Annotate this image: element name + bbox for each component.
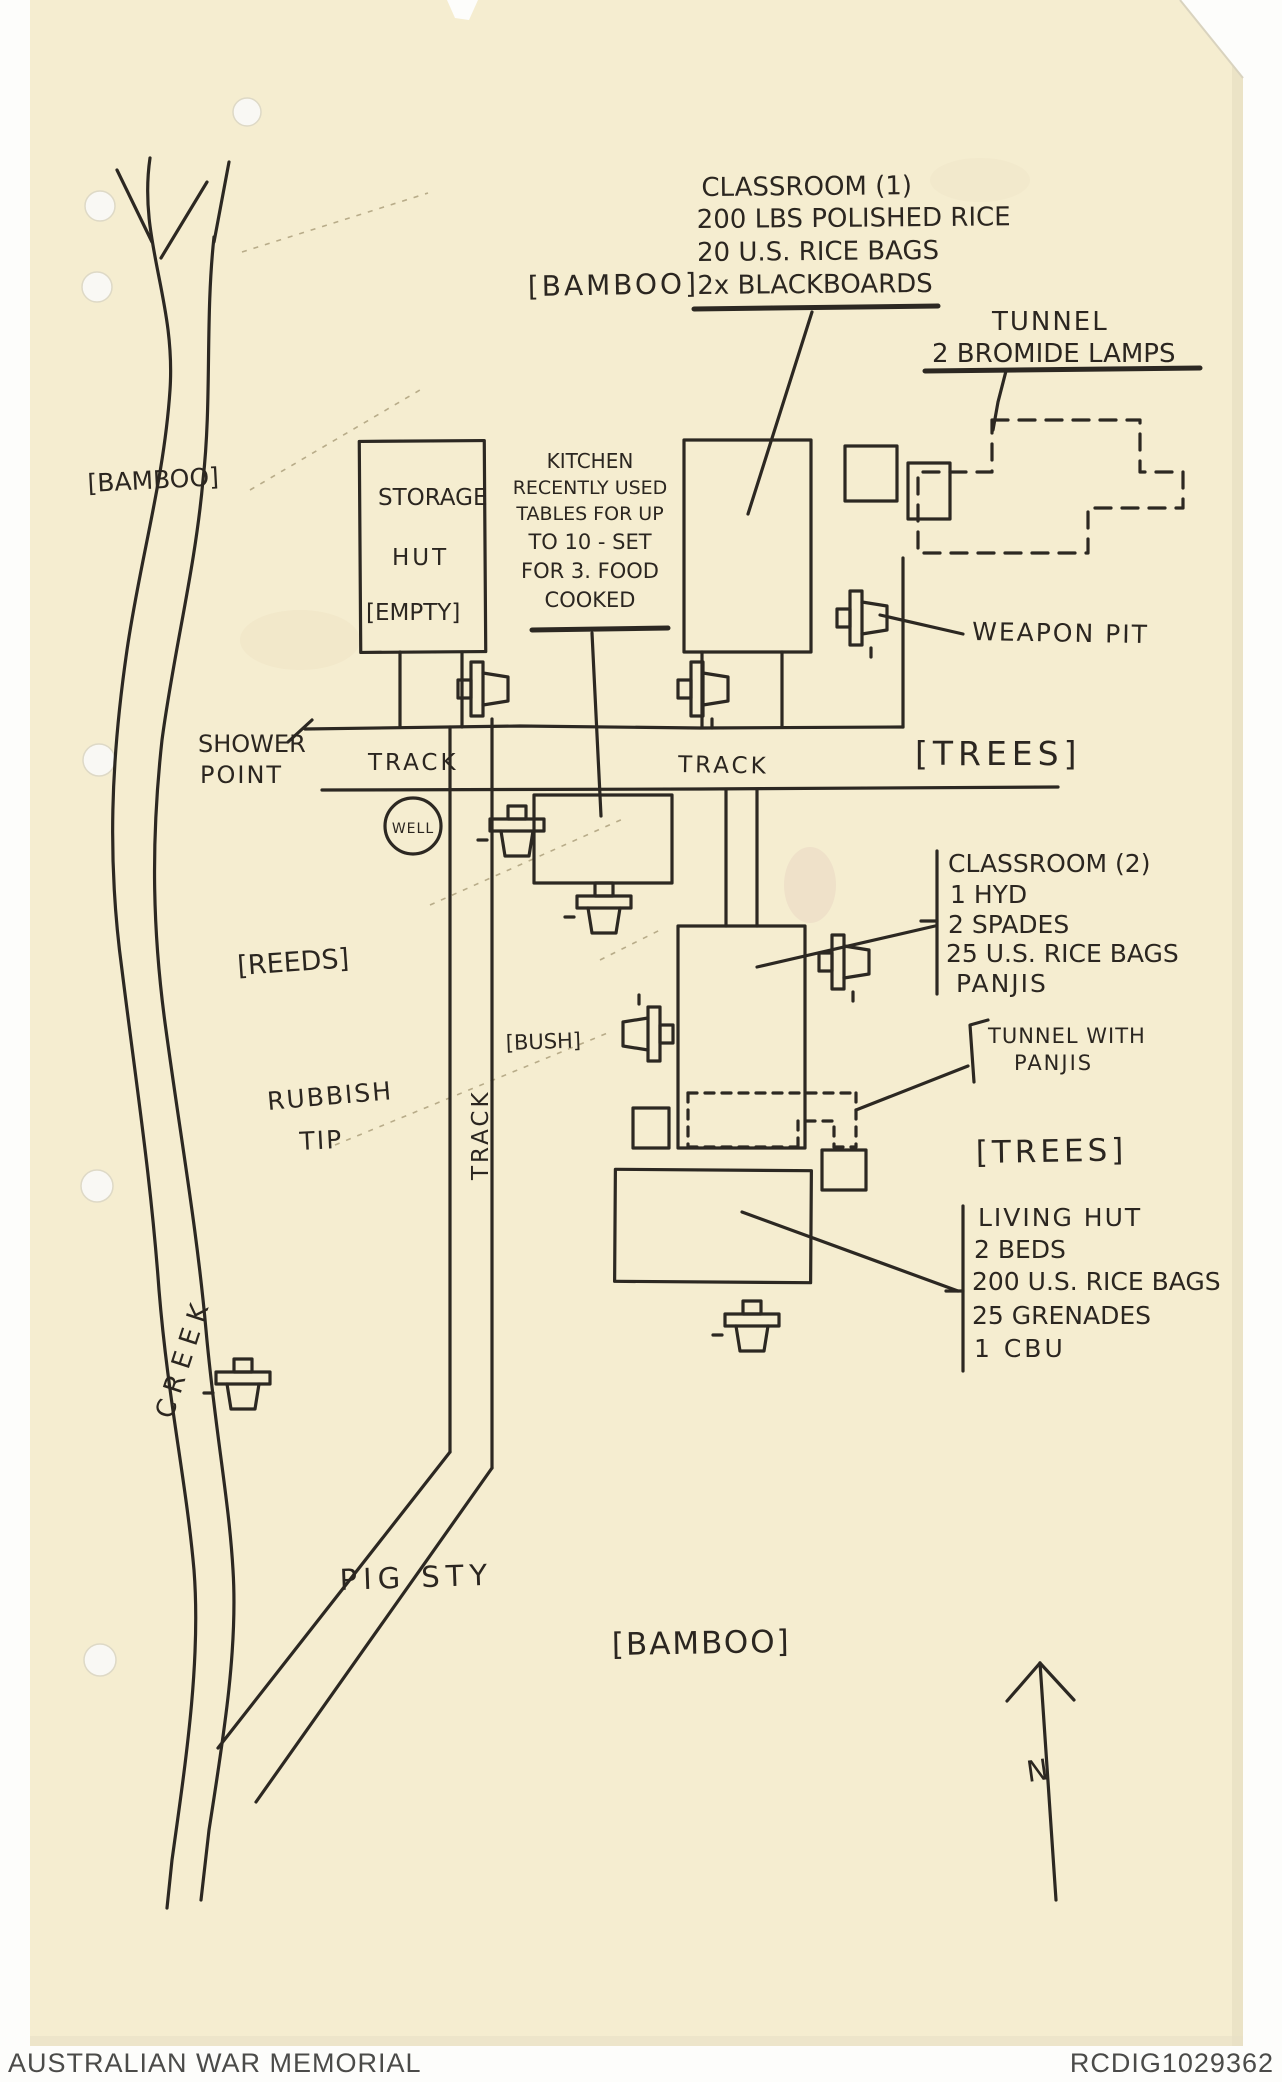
svg-text:1 HYD: 1 HYD — [950, 880, 1027, 909]
trees-upper-label: [TREES] — [915, 734, 1081, 773]
svg-text:2x BLACKBOARDS: 2x BLACKBOARDS — [697, 269, 933, 301]
paper-stain — [930, 158, 1030, 202]
trees-lower-label: [TREES] — [976, 1132, 1128, 1171]
svg-text:25 U.S. RICE BAGS: 25 U.S. RICE BAGS — [946, 939, 1179, 968]
svg-text:2 SPADES: 2 SPADES — [948, 910, 1069, 939]
well-label: WELL — [392, 821, 434, 837]
svg-text:CLASSROOM (1): CLASSROOM (1) — [701, 171, 912, 203]
svg-text:RECENTLY USED: RECENTLY USED — [513, 477, 668, 499]
scan-footer-band: AUSTRALIAN WAR MEMORIAL RCDIG1029362 — [0, 2046, 1282, 2082]
svg-text:PANJIS: PANJIS — [1014, 1051, 1093, 1075]
svg-text:TUNNEL: TUNNEL — [991, 307, 1109, 337]
svg-text:TIP: TIP — [298, 1125, 344, 1156]
sketch-map-canvas: [BAMBOO] [BAMBOO] [BAMBOO] CLASSROOM (1)… — [0, 0, 1282, 2082]
svg-text:SHOWER: SHOWER — [198, 730, 306, 758]
svg-text:TO 10 - SET: TO 10 - SET — [527, 530, 651, 554]
svg-text:[EMPTY]: [EMPTY] — [366, 600, 460, 626]
svg-text:TABLES FOR UP: TABLES FOR UP — [515, 503, 663, 525]
svg-text:HUT: HUT — [392, 545, 449, 571]
punch-hole — [84, 1644, 116, 1676]
svg-text:25 GRENADES: 25 GRENADES — [972, 1301, 1151, 1330]
svg-text:KITCHEN: KITCHEN — [547, 449, 634, 473]
punch-hole — [81, 1170, 113, 1202]
bamboo-bottom-label: [BAMBOO] — [612, 1624, 792, 1663]
paper-stain — [240, 610, 360, 670]
bamboo-top-label: [BAMBOO] — [528, 267, 700, 303]
svg-text:FOR 3. FOOD: FOR 3. FOOD — [521, 559, 659, 583]
svg-text:POINT: POINT — [200, 761, 283, 789]
paper-bottom-shadow — [30, 2036, 1243, 2046]
svg-text:TUNNEL WITH: TUNNEL WITH — [987, 1024, 1146, 1048]
svg-text:CLASSROOM (2): CLASSROOM (2) — [948, 849, 1150, 878]
svg-text:200 U.S. RICE BAGS: 200 U.S. RICE BAGS — [972, 1267, 1221, 1296]
svg-text:2 BROMIDE LAMPS: 2 BROMIDE LAMPS — [932, 339, 1175, 369]
svg-text:200 LBS POLISHED RICE: 200 LBS POLISHED RICE — [697, 202, 1011, 235]
punch-hole — [233, 98, 261, 126]
paper-stain — [784, 847, 836, 923]
weapon-pit-label: WEAPON PIT — [972, 617, 1149, 649]
track-vertical-label: TRACK — [468, 1089, 494, 1181]
archive-name: AUSTRALIAN WAR MEMORIAL — [8, 2048, 422, 2079]
svg-text:PANJIS: PANJIS — [956, 969, 1048, 998]
svg-text:LIVING HUT: LIVING HUT — [978, 1203, 1142, 1232]
paper-right-shadow — [1232, 0, 1243, 2046]
svg-text:20 U.S. RICE BAGS: 20 U.S. RICE BAGS — [697, 236, 939, 268]
track-upper-label: TRACK — [367, 750, 459, 776]
svg-text:STORAGE: STORAGE — [378, 485, 488, 511]
svg-text:COOKED: COOKED — [545, 588, 636, 612]
punch-hole — [85, 191, 115, 221]
archive-id: RCDIG1029362 — [1070, 2048, 1274, 2079]
scanned-document-page: [BAMBOO] [BAMBOO] [BAMBOO] CLASSROOM (1)… — [0, 0, 1282, 2082]
punch-hole — [82, 272, 112, 302]
svg-text:2 BEDS: 2 BEDS — [974, 1235, 1066, 1264]
punch-hole — [83, 744, 115, 776]
bush-label: [BUSH] — [505, 1028, 581, 1055]
pig-sty-label: PIG STY — [339, 1558, 494, 1597]
svg-text:1 CBU: 1 CBU — [974, 1334, 1066, 1363]
track-right-label: TRACK — [677, 752, 769, 780]
